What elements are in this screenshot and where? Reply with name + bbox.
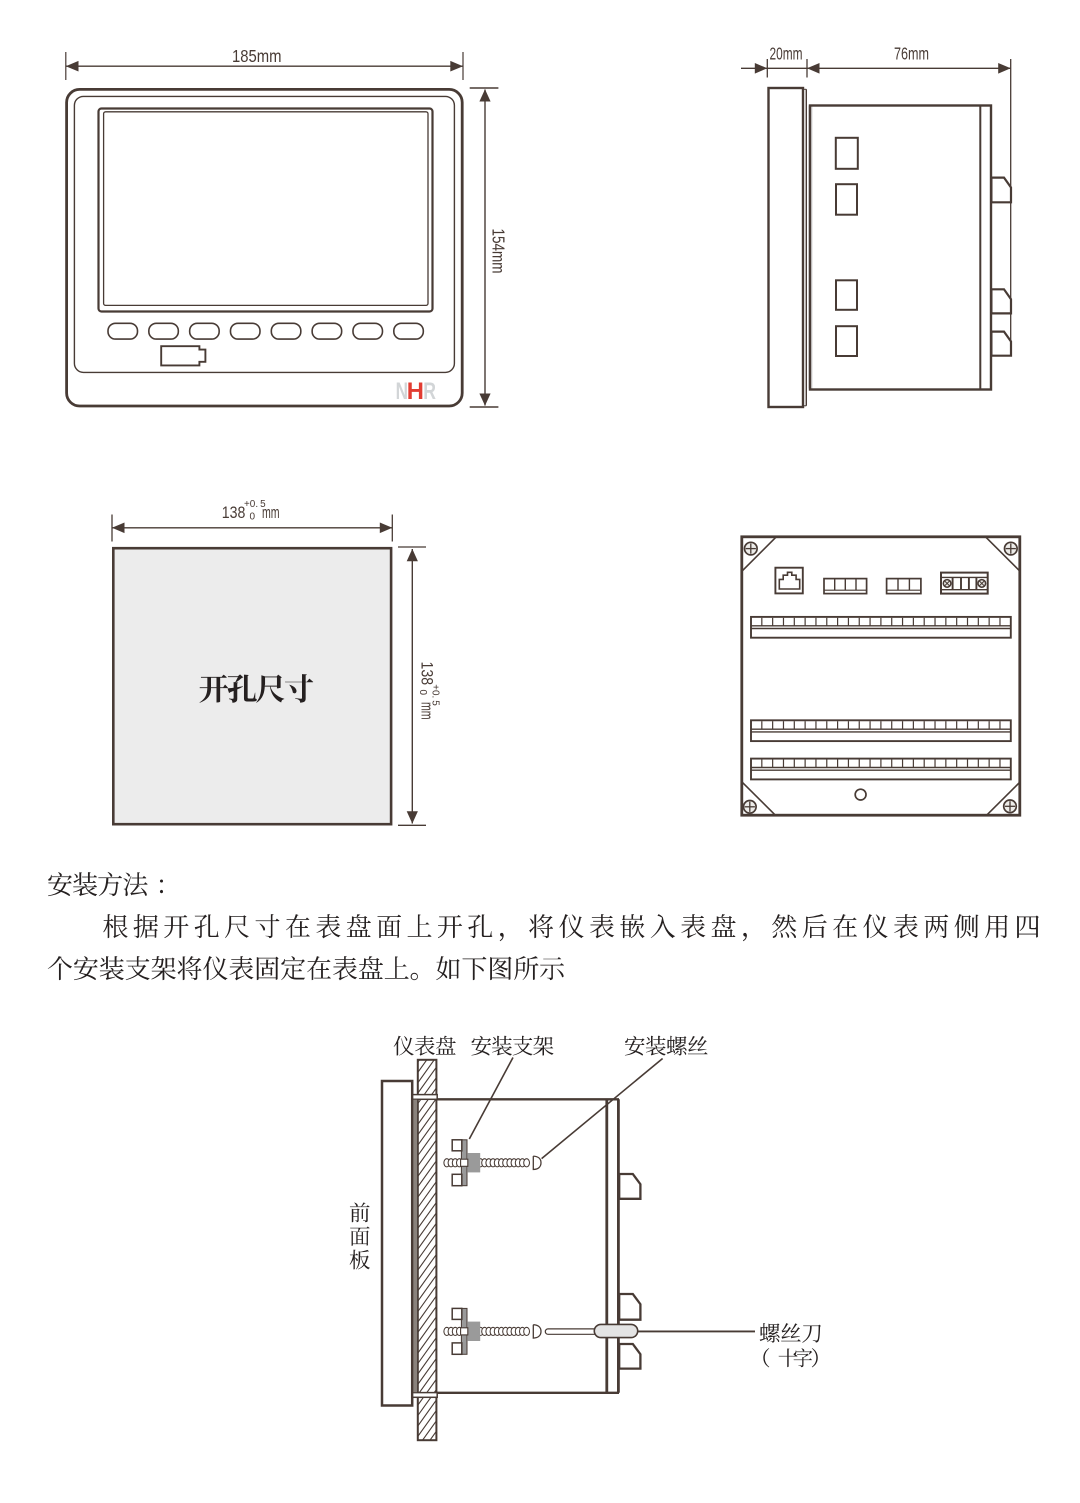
svg-text:mm: mm [418,702,436,720]
svg-text:H: H [407,377,424,404]
svg-text:138: 138 [418,662,436,686]
svg-text:154mm: 154mm [488,229,508,274]
svg-text:R: R [423,377,436,405]
svg-text:138: 138 [222,504,246,522]
svg-text:mm: mm [262,504,280,522]
svg-text:0: 0 [417,690,428,696]
svg-text:76mm: 76mm [894,44,929,64]
svg-text:185mm: 185mm [232,46,282,66]
svg-text:0: 0 [250,512,256,523]
svg-text:20mm: 20mm [770,44,803,64]
